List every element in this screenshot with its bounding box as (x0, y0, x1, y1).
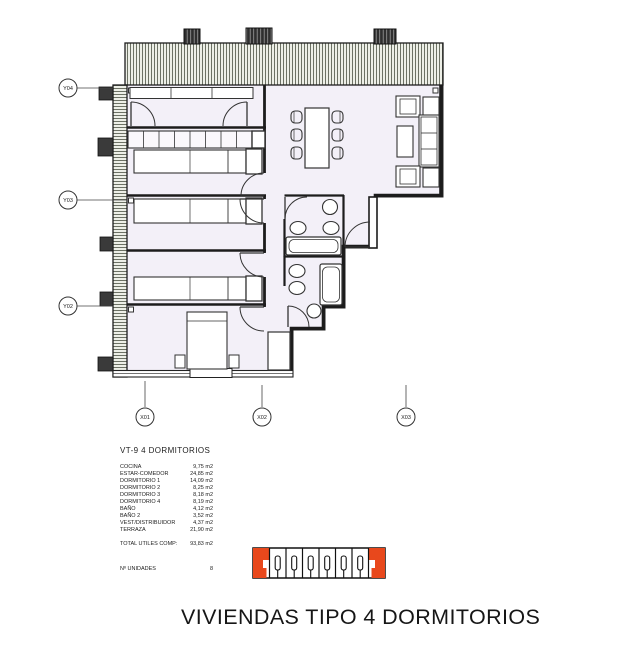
svg-text:Y03: Y03 (63, 198, 73, 204)
grid-marker-x01: X01 (136, 381, 154, 426)
room-area: 21,90 m2 (190, 527, 213, 534)
summary-heading: VT-9 4 DORMITORIOS (120, 446, 240, 455)
sofa-cushion-bottom (423, 168, 439, 187)
bidet-2 (289, 282, 305, 295)
room-area: 4,37 m2 (193, 520, 213, 527)
left-facade-wall (113, 85, 127, 377)
total-row: TOTAL UTILES COMP: 93,83 m2 (120, 541, 213, 548)
grid-marker-x03: X03 (397, 385, 415, 426)
area-row: DORMITORIO 4 8,19 m2 (120, 499, 213, 506)
area-row: DORMITORIO 3 8,18 m2 (120, 492, 213, 499)
room-area: 3,52 m2 (193, 513, 213, 520)
room-area: 24,85 m2 (190, 471, 213, 478)
room-label: VEST/DISTRIBUIDOR (120, 520, 175, 527)
units-value: 8 (210, 566, 213, 573)
facade-pilasters (98, 87, 113, 371)
area-row: COCINA 9,75 m2 (120, 464, 213, 471)
area-row: BAÑO 4,12 m2 (120, 506, 213, 513)
toilet-1 (290, 222, 306, 235)
floor-plan-canvas: Y04 Y03 Y02 X01 X02 X03 (0, 0, 632, 650)
room-label: ESTAR-COMEDOR (120, 471, 168, 478)
room-area: 14,09 m2 (190, 478, 213, 485)
sink-1 (323, 200, 338, 215)
dining-table (305, 108, 329, 168)
sheet-title: VIVIENDAS TIPO 4 DORMITORIOS (181, 605, 540, 630)
toilet-2 (289, 265, 305, 278)
svg-text:Y02: Y02 (63, 304, 73, 310)
svg-text:X03: X03 (401, 415, 411, 421)
svg-text:X02: X02 (257, 415, 267, 421)
area-row: VEST/DISTRIBUIDOR 4,37 m2 (120, 520, 213, 527)
room-label: DORMITORIO 1 (120, 478, 160, 485)
grid-marker-x02: X02 (253, 385, 271, 426)
bidet-1 (323, 222, 339, 235)
key-plan (253, 548, 385, 578)
room-label: DORMITORIO 4 (120, 499, 160, 506)
passage-wall-stub (369, 197, 377, 248)
room-area: 4,12 m2 (193, 506, 213, 513)
room-label: DORMITORIO 2 (120, 485, 160, 492)
sofa-cushion-top (423, 97, 439, 116)
bed-1 (134, 149, 262, 174)
room-label: TERRAZA (120, 527, 146, 534)
area-row: ESTAR-COMEDOR 24,85 m2 (120, 471, 213, 478)
dining-set (291, 108, 343, 168)
room-label: COCINA (120, 464, 141, 471)
area-row: DORMITORIO 1 14,09 m2 (120, 478, 213, 485)
total-label: TOTAL UTILES COMP: (120, 541, 177, 548)
room-area: 9,75 m2 (193, 464, 213, 471)
room-label: BAÑO 2 (120, 513, 140, 520)
room-area: 8,18 m2 (193, 492, 213, 499)
bed-3 (134, 276, 262, 301)
area-row: TERRAZA 21,90 m2 (120, 527, 213, 534)
floor-plan (98, 28, 443, 378)
area-row: DORMITORIO 2 8,25 m2 (120, 485, 213, 492)
units-label: Nº UNIDADES (120, 566, 156, 573)
top-facade-wall (125, 43, 443, 85)
kitchen-counter (130, 88, 253, 99)
room-label: BAÑO (120, 506, 136, 513)
coffee-table (397, 126, 413, 157)
wardrobe-band (128, 131, 265, 148)
area-summary: VT-9 4 DORMITORIOS COCINA 9,75 m2 ESTAR-… (120, 446, 240, 573)
room-area: 8,19 m2 (193, 499, 213, 506)
room-area: 8,25 m2 (193, 485, 213, 492)
total-value: 93,83 m2 (190, 541, 213, 548)
area-row: BAÑO 2 3,52 m2 (120, 513, 213, 520)
units-row: Nº UNIDADES 8 (120, 566, 213, 573)
svg-text:X01: X01 (140, 415, 150, 421)
sink-2 (307, 304, 321, 318)
svg-text:Y04: Y04 (63, 86, 73, 92)
drawing-sheet: Y04 Y03 Y02 X01 X02 X03 (0, 0, 632, 650)
chimney-blocks (184, 28, 396, 44)
room-label: DORMITORIO 3 (120, 492, 160, 499)
